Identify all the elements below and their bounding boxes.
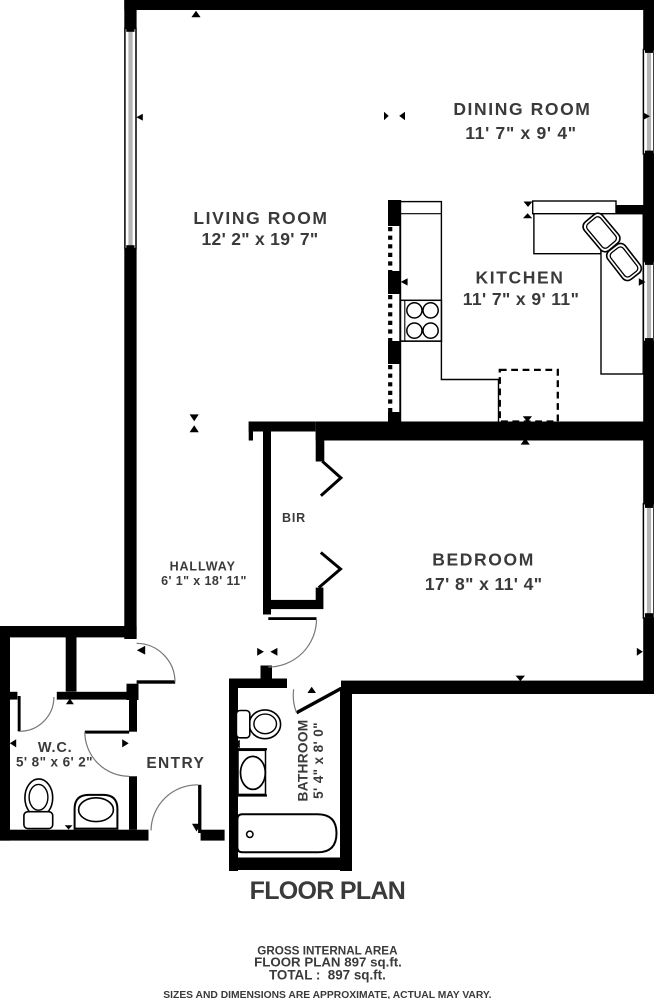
svg-text:17' 8" x 11' 4": 17' 8" x 11' 4" [425,574,543,594]
svg-text:5' 4" x 8' 0": 5' 4" x 8' 0" [311,722,326,799]
svg-text:11' 7" x 9' 4": 11' 7" x 9' 4" [465,123,577,143]
svg-text:SIZES AND DIMENSIONS ARE APPRO: SIZES AND DIMENSIONS ARE APPROXIMATE, AC… [163,990,491,999]
svg-text:TOTAL : 897 sq.ft.: TOTAL : 897 sq.ft. [269,968,386,983]
svg-text:11' 7" x 9' 11": 11' 7" x 9' 11" [463,289,580,309]
svg-text:5' 8" x 6' 2": 5' 8" x 6' 2" [16,755,93,770]
svg-text:LIVING ROOM: LIVING ROOM [193,208,328,228]
svg-text:6' 1" x 18' 11": 6' 1" x 18' 11" [161,574,247,588]
svg-text:HALLWAY: HALLWAY [170,559,236,573]
svg-text:BATHROOM: BATHROOM [296,720,311,802]
svg-text:BIR: BIR [282,511,306,525]
svg-text:DINING ROOM: DINING ROOM [453,99,591,119]
svg-text:ENTRY: ENTRY [146,755,205,772]
svg-text:BEDROOM: BEDROOM [432,550,535,570]
svg-text:12' 2" x 19' 7": 12' 2" x 19' 7" [202,229,319,249]
svg-text:KITCHEN: KITCHEN [476,267,565,287]
svg-text:FLOOR PLAN: FLOOR PLAN [250,877,406,905]
